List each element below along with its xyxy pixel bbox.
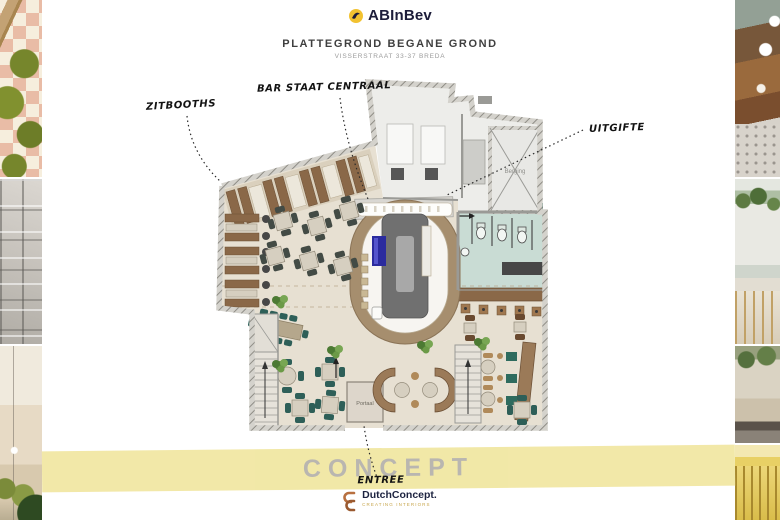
bar-oval — [350, 200, 460, 344]
photo-strip-right — [735, 0, 780, 520]
stairs-right — [455, 345, 481, 423]
annotation-uitgifte: UITGIFTE — [589, 122, 645, 135]
photo-coffered-ceiling — [0, 179, 42, 344]
leader-zitbooths — [187, 116, 221, 182]
page-subtitle: VISSERSTRAAT 33-37 BREDA — [0, 53, 780, 60]
berging-label: Berging — [505, 169, 526, 175]
photo-tiled-floor-green-poufs — [0, 0, 42, 177]
leader-entree — [364, 426, 378, 480]
footer-logo: DutchConcept. CREATING INTERIORS — [0, 490, 780, 512]
brand-name: ABInBev — [368, 7, 432, 24]
slide: ABInBev PLATTEGROND BEGANE GROND VISSERS… — [0, 0, 780, 520]
photo-brown-leather-booths — [735, 0, 780, 177]
brand-row: ABInBev — [0, 7, 780, 24]
floor-plan: Berging — [125, 64, 660, 489]
photo-restaurant-greenery — [735, 346, 780, 443]
berging-room: Berging — [490, 128, 540, 212]
footer-tagline: CREATING INTERIORS — [362, 502, 437, 507]
photo-strip-left — [0, 0, 42, 520]
dutchconcept-logo-icon — [343, 490, 357, 512]
portaal-label: Portaal — [356, 401, 373, 407]
photo-bar-hanging-plants — [735, 179, 780, 344]
footer-brand: DutchConcept. — [362, 490, 437, 501]
page-title: PLATTEGROND BEGANE GROND — [0, 38, 780, 50]
keg — [372, 307, 382, 319]
annotation-entree: ENTREE — [350, 474, 412, 486]
stairs-left — [252, 314, 278, 428]
abinbev-logo-icon — [348, 8, 364, 24]
